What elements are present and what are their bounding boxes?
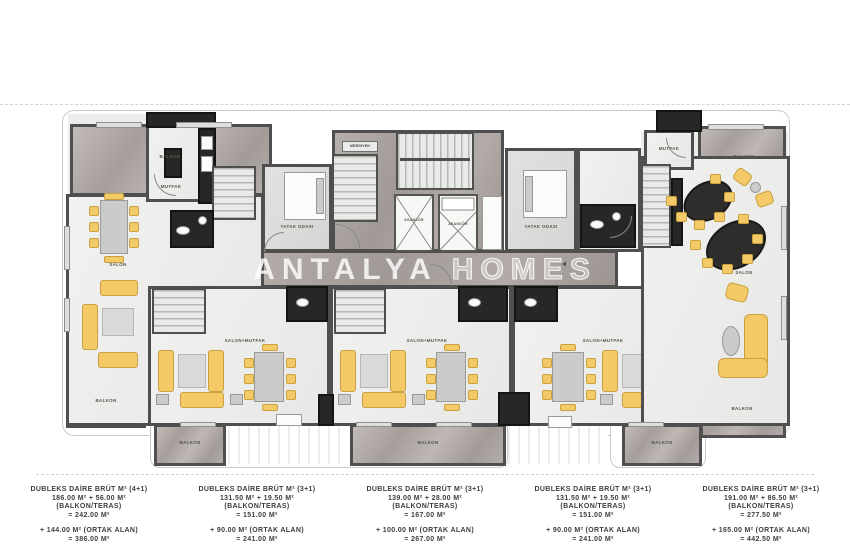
unit2-rug [178, 354, 206, 388]
unit3-balcony-note: (BALKON/TERAS) [342, 503, 508, 512]
unit1-stairs [212, 166, 256, 220]
unit2-side-table [156, 394, 169, 405]
unit5-round-table [750, 182, 761, 193]
dining-chair [89, 238, 99, 248]
unit2-dining-table [254, 352, 284, 402]
dining-chair [444, 344, 460, 351]
dining-chair [244, 390, 254, 400]
window [628, 422, 664, 427]
unit1-spec: DUBLEKS DAİRE BRÜT M² (4+1) 186.00 M² + … [6, 486, 172, 545]
oval-chair [694, 220, 705, 230]
floor-plan-page: MERDİVEN ASANSÖR ASANSÖR [0, 0, 850, 550]
room-label-balkon: BALKON [78, 398, 134, 403]
core-stairs-rail [400, 158, 470, 161]
unit4-title: DUBLEKS DAİRE BRÜT M² (3+1) [510, 486, 676, 495]
terrace-railing-gap-right [508, 424, 608, 464]
room-label-salon: SALON [716, 270, 772, 275]
window [781, 296, 787, 340]
room-label-yatak-odasi: YATAK ODASI [508, 224, 574, 229]
dining-chair [286, 390, 296, 400]
oval-chair [666, 196, 677, 206]
unit1-sofa-vertical [82, 304, 98, 350]
core-stairs-main [396, 132, 474, 190]
unit5-balcony-note: (BALKON/TERAS) [678, 503, 844, 512]
dining-chair [468, 390, 478, 400]
oval-chair [702, 258, 713, 268]
unit3-toilet [468, 298, 481, 307]
oval-chair [752, 234, 763, 244]
unit2-title: DUBLEKS DAİRE BRÜT M² (3+1) [174, 486, 340, 495]
unit3-title: DUBLEKS DAİRE BRÜT M² (3+1) [342, 486, 508, 495]
dining-chair [129, 222, 139, 232]
room-label-balkon: BALKON [130, 154, 210, 159]
unit2-area: 131.50 M² + 19.50 M² [174, 495, 340, 504]
unit1-title: DUBLEKS DAİRE BRÜT M² (4+1) [6, 486, 172, 495]
unit5-title: DUBLEKS DAİRE BRÜT M² (3+1) [678, 486, 844, 495]
window [436, 422, 472, 427]
guide-line-top [0, 104, 850, 105]
oval-chair [724, 192, 735, 202]
unit2-subtotal: = 151.00 M² [174, 512, 340, 521]
unit-specs-row: DUBLEKS DAİRE BRÜT M² (4+1) 186.00 M² + … [0, 486, 850, 545]
dining-chair [244, 374, 254, 384]
unit1-sofa-horizontal-2 [98, 352, 138, 368]
oval-chair [710, 174, 721, 184]
oval-chair [676, 212, 687, 222]
unit2-side-table [230, 394, 243, 405]
room-label-balkon: BALKON [716, 154, 772, 159]
unit3-total: = 267.00 M² [342, 536, 508, 545]
unit1-sink [198, 216, 207, 225]
dining-chair [426, 390, 436, 400]
oval-chair [714, 212, 725, 222]
unit4-common: + 90.00 M² (ORTAK ALAN) [510, 527, 676, 536]
unit3-sofa-right [390, 350, 406, 392]
unit3-area: 139.00 M² + 28.00 M² [342, 495, 508, 504]
unit1-toilet [176, 226, 190, 235]
window [180, 422, 216, 427]
unit1-sofa-horizontal [100, 280, 138, 296]
elevator-2-label: ASANSÖR [440, 222, 476, 227]
unit5-ottoman [722, 326, 740, 356]
unit1-rug [102, 308, 134, 336]
core-shaft-room [482, 196, 502, 250]
unit5-area: 191.00 M² + 86.50 M² [678, 495, 844, 504]
dining-chair [262, 344, 278, 351]
room-label-mutfak: MUTFAK [646, 146, 692, 151]
entry-step-2 [548, 416, 572, 428]
room-label-salon-mutfak: SALON+MUTFAK [382, 338, 472, 343]
dining-chair [426, 358, 436, 368]
unit1-area: 186.00 M² + 56.00 M² [6, 495, 172, 504]
dining-chair [262, 404, 278, 411]
unit2-spec: DUBLEKS DAİRE BRÜT M² (3+1) 131.50 M² + … [174, 486, 340, 545]
unit3-common: + 100.00 M² (ORTAK ALAN) [342, 527, 508, 536]
window [708, 124, 764, 130]
unit5-subtotal: = 277.50 M² [678, 512, 844, 521]
unit1-appliance-1 [201, 136, 213, 150]
unit2-balcony-note: (BALKON/TERAS) [174, 503, 340, 512]
dining-chair [244, 358, 254, 368]
balcony-bottom-1 [154, 424, 226, 466]
unit3-stairs [334, 288, 386, 334]
unit5-common: + 165.00 M² (ORTAK ALAN) [678, 527, 844, 536]
unit1-bed-pillow [316, 178, 324, 214]
room-label-yatak-odasi: YATAK ODASI [266, 224, 328, 229]
unit4-subtotal: = 151.00 M² [510, 512, 676, 521]
oval-chair [738, 214, 749, 224]
guide-line-bottom [36, 474, 814, 475]
dining-chair [586, 374, 596, 384]
party-wall-shaft-1 [318, 394, 334, 426]
unit4-sofa-left [602, 350, 618, 392]
elevator-1-label: ASANSÖR [396, 218, 432, 223]
window [64, 298, 70, 332]
dining-chair [542, 374, 552, 384]
dining-chair [89, 206, 99, 216]
dining-chair [286, 374, 296, 384]
unit5-total: = 442.50 M² [678, 536, 844, 545]
unit3-rug [360, 354, 388, 388]
unit3-side-table [338, 394, 351, 405]
balcony-bottom-3 [622, 424, 702, 466]
unit2-stairs [152, 288, 206, 334]
unit4-dining-table [552, 352, 584, 402]
unit5-bed-pillow [525, 176, 533, 212]
dining-chair [560, 404, 576, 411]
unit2-toilet [296, 298, 309, 307]
oval-chair [690, 240, 701, 250]
elevator-shaft-1-icon [394, 194, 434, 252]
dining-chair [286, 358, 296, 368]
room-label-balkon: BALKON [160, 440, 220, 445]
window [356, 422, 392, 427]
unit4-total: = 241.00 M² [510, 536, 676, 545]
unit5-l-sofa-horizontal [718, 358, 768, 378]
unit5-toilet [590, 220, 604, 229]
unit1-balcony-note: (BALKON/TERAS) [6, 503, 172, 512]
dining-chair [586, 358, 596, 368]
window [781, 206, 787, 250]
unit3-sofa-left [340, 350, 356, 392]
unit2-common: + 90.00 M² (ORTAK ALAN) [174, 527, 340, 536]
unit3-subtotal: = 167.00 M² [342, 512, 508, 521]
dining-chair [89, 222, 99, 232]
room-label-balkon: BALKON [712, 406, 772, 411]
dining-chair [560, 344, 576, 351]
stairs-label-box: MERDİVEN [342, 141, 378, 152]
unit5-kitchen-counter [656, 110, 702, 132]
dining-chair [542, 358, 552, 368]
room-label-salon: SALON [88, 262, 148, 267]
dining-chair [426, 374, 436, 384]
unit2-sofa-left [158, 350, 174, 392]
unit3-sofa-horizontal [362, 392, 406, 408]
unit1-subtotal: = 242.00 M² [6, 512, 172, 521]
unit1-total: = 386.00 M² [6, 536, 172, 545]
unit3-side-table [412, 394, 425, 405]
dining-chair [129, 238, 139, 248]
room-label-balkon: BALKON [398, 440, 458, 445]
unit3-bathroom [458, 286, 508, 322]
unit5-stairs [641, 164, 671, 248]
unit5-spec: DUBLEKS DAİRE BRÜT M² (3+1) 191.00 M² + … [678, 486, 844, 545]
corridor [238, 250, 618, 288]
room-label-mutfak: MUTFAK [146, 184, 196, 189]
dining-chair [542, 390, 552, 400]
unit1-common: + 144.00 M² (ORTAK ALAN) [6, 527, 172, 536]
oval-chair [742, 254, 753, 264]
room-label-balkon: BALKON [632, 440, 692, 445]
window [176, 122, 232, 128]
unit2-sofa-horizontal [180, 392, 224, 408]
dining-chair [468, 374, 478, 384]
balcony-bottom-2 [350, 424, 506, 466]
entry-step-1 [276, 414, 302, 426]
room-label-salon-mutfak: SALON+MUTFAK [558, 338, 648, 343]
dining-chair [586, 390, 596, 400]
room-label-salon-mutfak: SALON+MUTFAK [200, 338, 290, 343]
party-wall-shaft-2 [498, 392, 530, 426]
dining-chair [104, 193, 124, 200]
unit2-sofa-right [208, 350, 224, 392]
unit4-balcony-note: (BALKON/TERAS) [510, 503, 676, 512]
unit3-dining-table [436, 352, 466, 402]
unit4-side-table [600, 394, 613, 405]
dining-chair [129, 206, 139, 216]
core-stairs-left [332, 154, 378, 222]
unit2-total: = 241.00 M² [174, 536, 340, 545]
dining-chair [444, 404, 460, 411]
window [64, 226, 70, 270]
unit4-area: 131.50 M² + 19.50 M² [510, 495, 676, 504]
unit4-toilet [524, 298, 537, 307]
window [96, 122, 142, 128]
unit1-dining-table [100, 200, 128, 254]
terrace-railing-gap-left [228, 424, 348, 464]
unit4-spec: DUBLEKS DAİRE BRÜT M² (3+1) 131.50 M² + … [510, 486, 676, 545]
unit3-spec: DUBLEKS DAİRE BRÜT M² (3+1) 139.00 M² + … [342, 486, 508, 545]
dining-chair [468, 358, 478, 368]
